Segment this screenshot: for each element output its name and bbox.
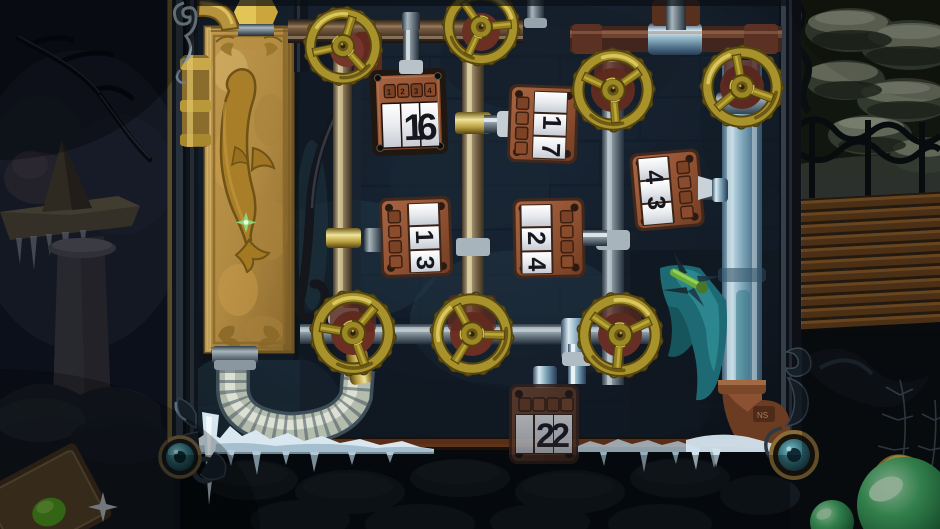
svg-text:16: 16 [403,106,438,148]
svg-text:NS: NS [757,411,768,420]
